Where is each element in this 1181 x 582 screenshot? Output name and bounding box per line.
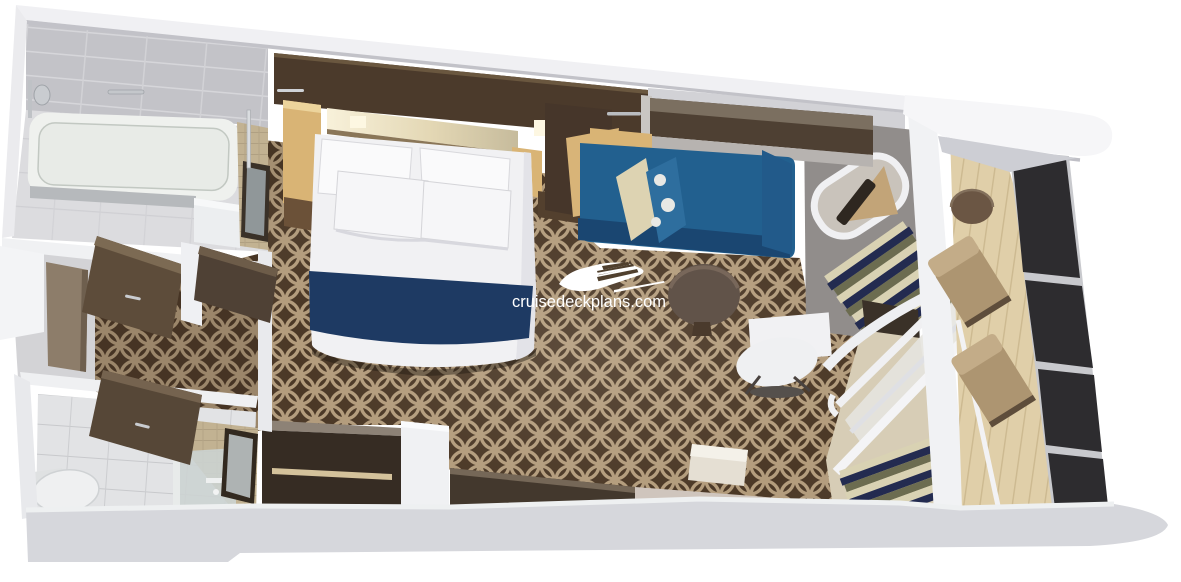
svg-text:cruisedeckplans.com: cruisedeckplans.com [512,293,666,311]
